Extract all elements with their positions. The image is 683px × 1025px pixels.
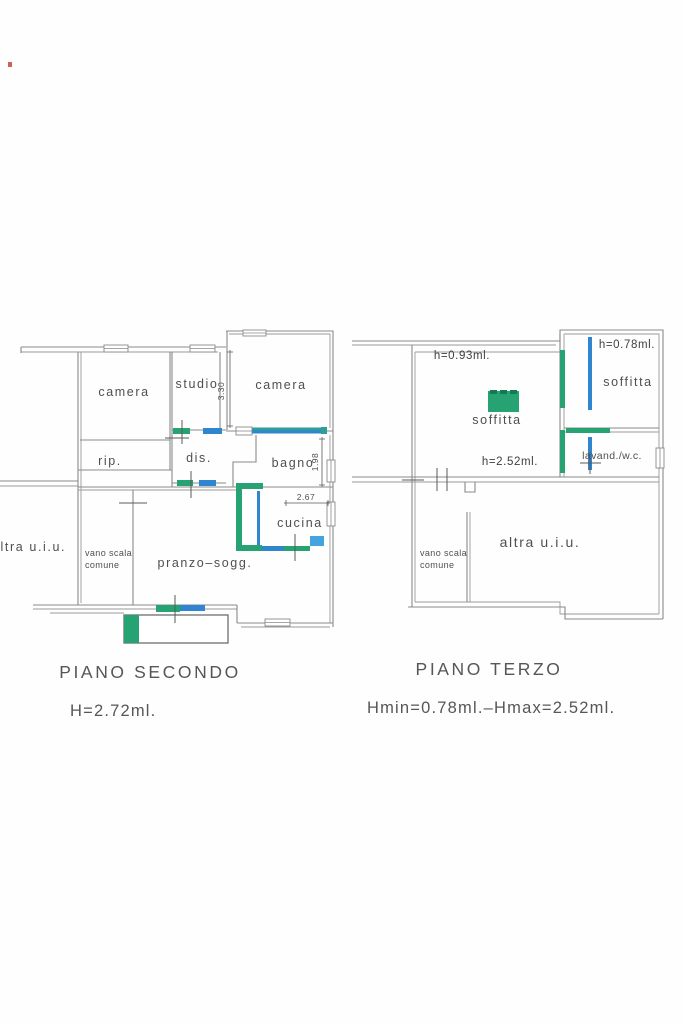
marker-green-cucina-bottom-1 bbox=[236, 545, 262, 551]
marker-teal-bagno-corner bbox=[321, 427, 327, 434]
height-note-piano-secondo: H=2.72ml. bbox=[70, 702, 156, 720]
room-label-bagno: bagno bbox=[272, 456, 315, 470]
room-label-soffitta-right: soffitta bbox=[603, 375, 652, 389]
room-label-vano-scala-line1: vano scala bbox=[85, 548, 132, 558]
floor-plan-drawing: 3.30 1.98 2.67 camera studio camera rip.… bbox=[0, 0, 683, 1025]
room-label-vano-scala-line2: comune bbox=[85, 560, 119, 570]
window-top-1 bbox=[104, 345, 128, 352]
marker-blue-dis-bottom bbox=[199, 480, 216, 486]
marker-green-pranzo-bottom bbox=[156, 605, 180, 612]
marker-green-divider-top bbox=[560, 350, 565, 408]
window-camera2-top bbox=[243, 330, 266, 336]
plan-piano-secondo: 3.30 1.98 2.67 camera studio camera rip.… bbox=[0, 330, 335, 643]
marker-blue-pranzo-bottom bbox=[180, 605, 205, 611]
window-bagno-right bbox=[327, 460, 335, 482]
marker-teal-bagno-top bbox=[252, 428, 324, 431]
marker-blue-soffitta-right bbox=[588, 337, 592, 410]
room-label-vano-scala2-line2: comune bbox=[420, 560, 454, 570]
floor-plan-sheet: 3.30 1.98 2.67 camera studio camera rip.… bbox=[0, 0, 683, 1025]
marker-green-balcony bbox=[124, 615, 139, 643]
marker-blue-bagno-top bbox=[252, 431, 324, 434]
window-dis-top bbox=[236, 427, 252, 435]
marker-blue-cucina-left bbox=[257, 491, 260, 545]
room-label-cucina: cucina bbox=[277, 516, 323, 530]
balcony bbox=[50, 613, 228, 643]
window-entrance-bottom bbox=[265, 619, 290, 626]
window-top-2 bbox=[190, 345, 215, 352]
room-labels-piano-terzo: soffitta soffitta lavand./w.c. vano scal… bbox=[420, 375, 653, 570]
room-label-vano-scala2-line1: vano scala bbox=[420, 548, 467, 558]
marker-green-lavand-top bbox=[566, 428, 610, 433]
plan-piano-terzo: h=0.93ml. h=0.78ml. h=2.52ml. soffitta s… bbox=[352, 330, 664, 619]
room-label-camera-2: camera bbox=[255, 378, 306, 392]
room-label-pranzo-sogg: pranzo–sogg. bbox=[158, 556, 253, 570]
room-label-altra-uiu-2: altra u.i.u. bbox=[500, 534, 581, 550]
caption-piano-terzo: PIANO TERZO bbox=[416, 659, 563, 679]
room-label-dis: dis. bbox=[186, 451, 212, 465]
room-label-lavand-wc: lavand./w.c. bbox=[582, 450, 642, 462]
room-label-altra-uiu: altra u.i.u. bbox=[0, 540, 66, 554]
captions: PIANO SECONDO H=2.72ml. PIANO TERZO Hmin… bbox=[59, 659, 615, 720]
scan-artifact-dot bbox=[8, 62, 12, 67]
room-label-soffitta-main: soffitta bbox=[472, 413, 521, 427]
room-label-rip: rip. bbox=[98, 454, 122, 468]
height-label-soffitta-top: h=0.93ml. bbox=[434, 350, 490, 362]
caption-piano-secondo: PIANO SECONDO bbox=[59, 662, 241, 682]
window-lavand-right bbox=[656, 448, 664, 468]
windows-piano-terzo bbox=[656, 448, 664, 468]
height-note-piano-terzo: Hmin=0.78ml.–Hmax=2.52ml. bbox=[367, 699, 615, 717]
chimney-block bbox=[488, 390, 519, 412]
marker-lightblue-cucina-corner bbox=[310, 536, 324, 546]
marker-blue-dis-top bbox=[203, 428, 222, 434]
marker-blue-cucina-bottom bbox=[262, 546, 284, 551]
marker-green-cucina-bottom-2 bbox=[284, 546, 310, 551]
room-label-studio: studio bbox=[176, 377, 219, 391]
dimension-cucina-width: 2.67 bbox=[284, 492, 330, 506]
height-label-soffitta-bottom: h=2.52ml. bbox=[482, 456, 538, 468]
dimension-cucina-width-label: 2.67 bbox=[297, 492, 316, 502]
balcony-outline bbox=[124, 615, 228, 643]
walls-piano-secondo bbox=[0, 331, 333, 627]
walls-piano-terzo bbox=[352, 330, 663, 619]
height-label-soffitta-right: h=0.78ml. bbox=[599, 339, 655, 351]
room-label-camera-1: camera bbox=[98, 385, 149, 399]
marker-green-cucina-left bbox=[236, 483, 242, 551]
height-labels-piano-terzo: h=0.93ml. h=0.78ml. h=2.52ml. bbox=[434, 339, 655, 468]
marker-green-divider-bottom bbox=[560, 430, 565, 473]
dimension-studio-depth: 3.30 bbox=[216, 350, 233, 428]
room-labels-piano-secondo: camera studio camera rip. dis. bagno cuc… bbox=[0, 377, 323, 570]
